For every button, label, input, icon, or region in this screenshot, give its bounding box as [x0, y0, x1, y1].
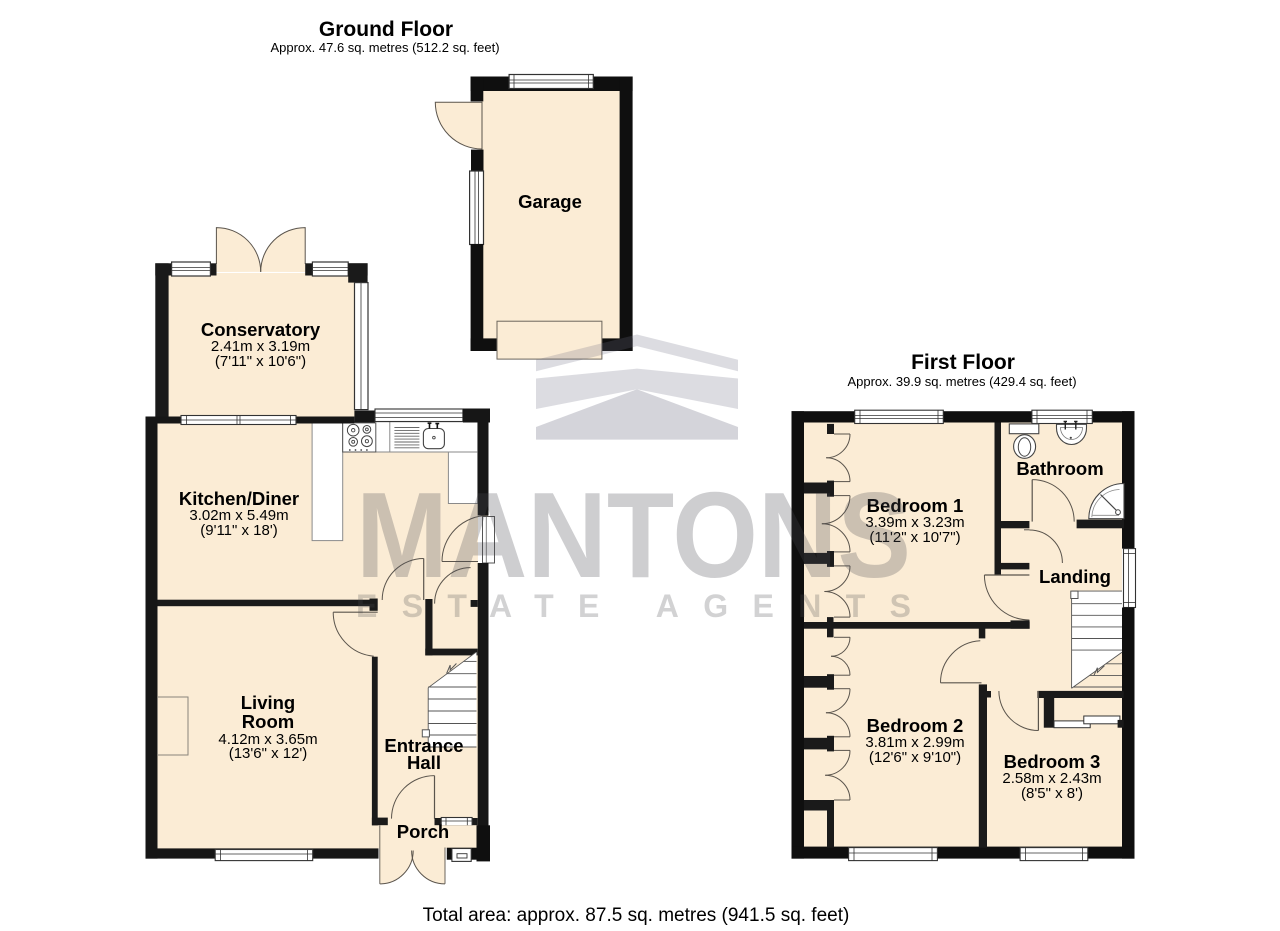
- svg-text:Conservatory: Conservatory: [201, 319, 321, 340]
- svg-text:Total area: approx. 87.5 sq. m: Total area: approx. 87.5 sq. metres (941…: [423, 905, 850, 926]
- svg-text:Approx. 47.6 sq. metres (512.2: Approx. 47.6 sq. metres (512.2 sq. feet): [270, 40, 499, 55]
- svg-text:Bedroom 3: Bedroom 3: [1004, 751, 1101, 772]
- svg-text:Kitchen/Diner: Kitchen/Diner: [179, 488, 299, 509]
- svg-text:Hall: Hall: [407, 752, 441, 773]
- svg-text:Approx. 39.9 sq. metres (429.4: Approx. 39.9 sq. metres (429.4 sq. feet): [847, 374, 1076, 389]
- svg-text:Garage: Garage: [518, 191, 582, 212]
- svg-text:MANTONS: MANTONS: [356, 467, 911, 603]
- svg-text:Living: Living: [241, 692, 295, 713]
- svg-text:Ground Floor: Ground Floor: [319, 18, 453, 41]
- svg-text:(12'6" x 9'10"): (12'6" x 9'10"): [869, 749, 961, 766]
- svg-text:Bedroom 2: Bedroom 2: [867, 715, 964, 736]
- svg-text:(13'6" x 12'): (13'6" x 12'): [229, 745, 308, 762]
- svg-text:Room: Room: [242, 711, 294, 732]
- svg-text:First Floor: First Floor: [911, 351, 1015, 374]
- svg-text:Bathroom: Bathroom: [1016, 458, 1103, 479]
- svg-text:(7'11" x 10'6"): (7'11" x 10'6"): [215, 353, 306, 370]
- svg-text:Landing: Landing: [1039, 566, 1111, 587]
- svg-text:Porch: Porch: [397, 821, 449, 842]
- svg-text:(8'5" x 8'): (8'5" x 8'): [1021, 785, 1083, 802]
- svg-text:(9'11" x 18'): (9'11" x 18'): [200, 522, 277, 539]
